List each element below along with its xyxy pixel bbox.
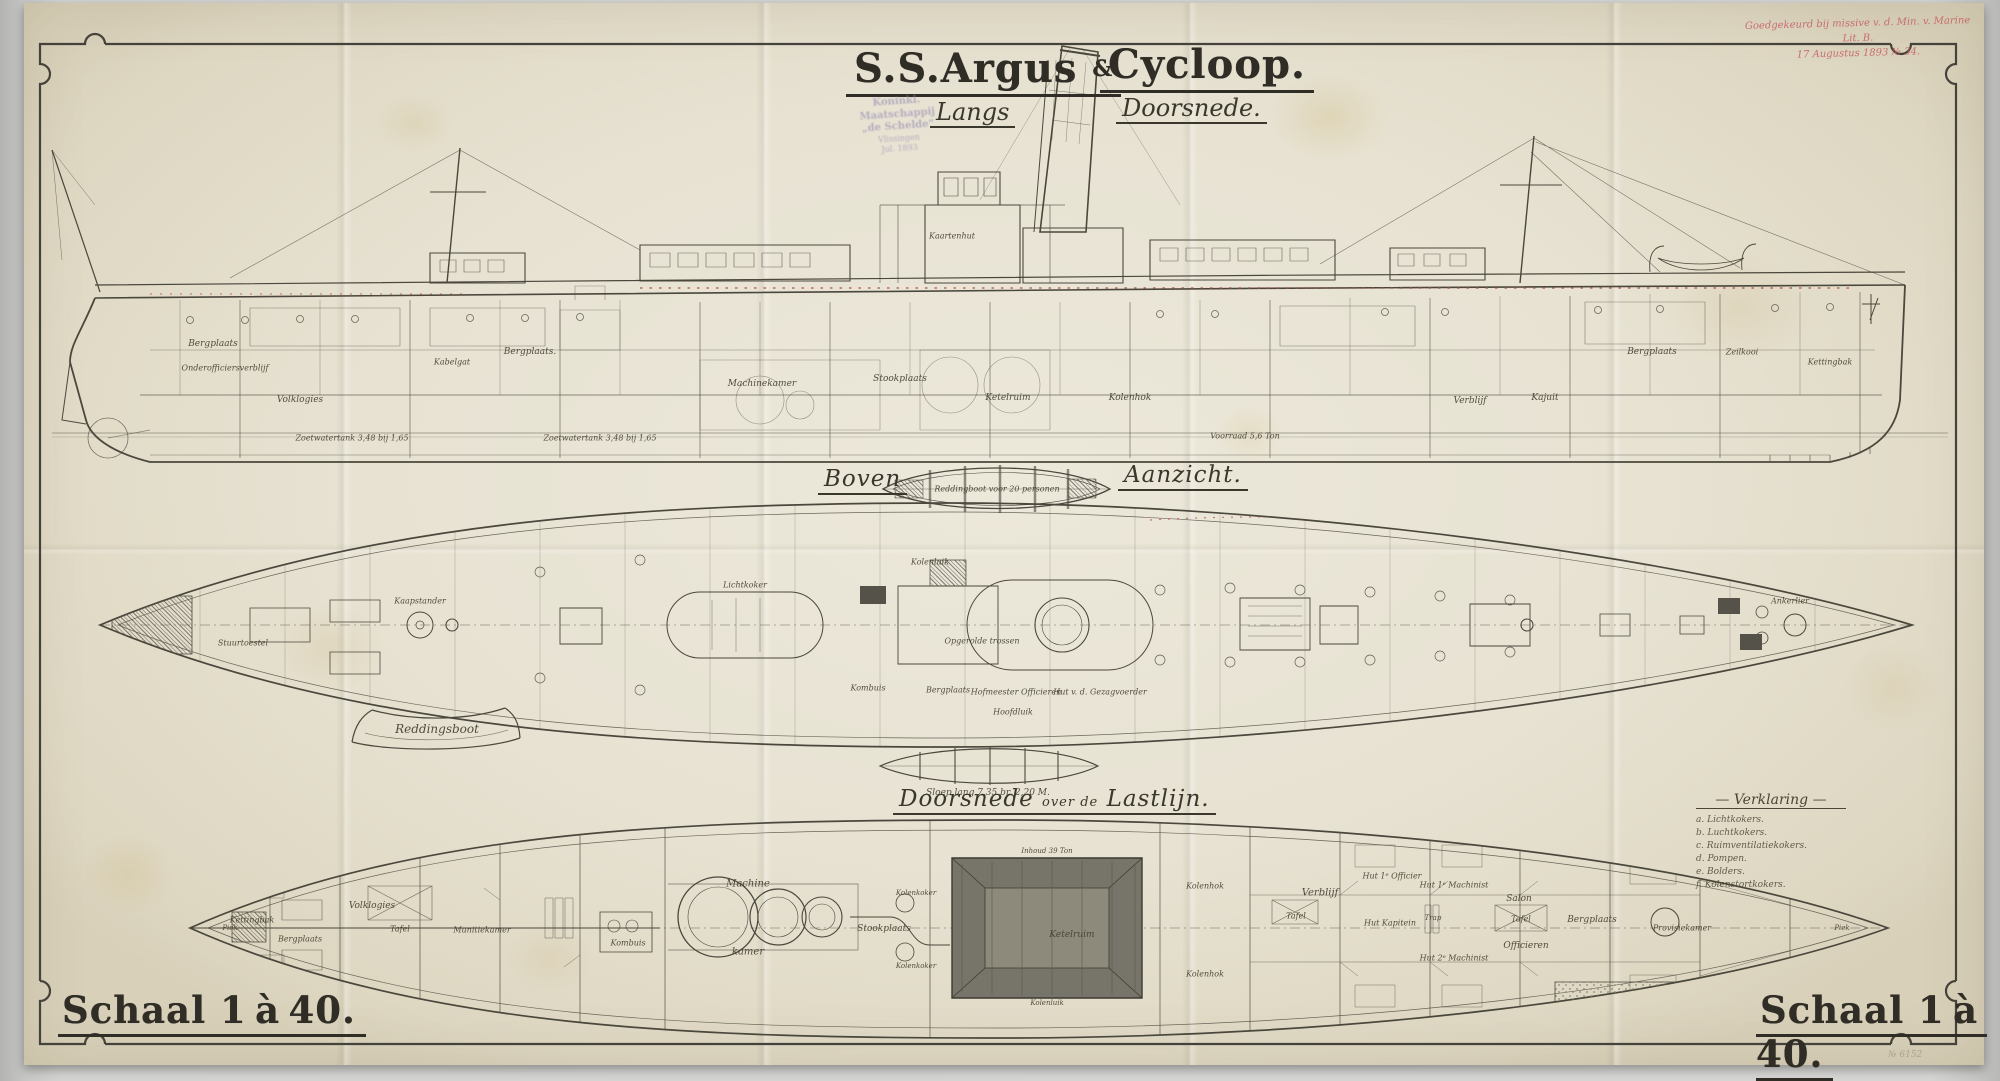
approval-annotation: Goedgekeurd bij missive v. d. Min. v. Ma… <box>1737 13 1978 64</box>
drawing-label: Kettingbak <box>1808 358 1853 367</box>
legend-item: c. Ruimventilatiekokers. <box>1696 840 1846 853</box>
drawing-label: Kolenkoker <box>896 962 936 970</box>
drawing-label: Volklogies <box>277 395 323 405</box>
scanned-ship-plan-sheet: { "title": { "left": "S.S.Argus", "amp":… <box>0 0 2000 1081</box>
drawing-label: Zoetwatertank 3,48 bij 1,65 <box>295 434 408 443</box>
drawing-label: Hoofdluik <box>993 708 1033 717</box>
drawing-label: Ankerlier <box>1771 597 1809 606</box>
drawing-label: Kaapstander <box>394 597 446 606</box>
legend-item: e. Bolders. <box>1696 866 1846 879</box>
drawing-label: Kolenkoker <box>896 889 936 897</box>
drawing-label: Hut 1ᵉ Officier <box>1363 872 1422 881</box>
drawing-label: Stookplaats <box>873 374 927 384</box>
drawing-label: Machine <box>726 879 770 890</box>
drawing-label: Hut Kapitein <box>1364 919 1416 928</box>
scale-note-right: Schaal 1 à 40. <box>1756 988 2000 1076</box>
drawing-label: Tafel <box>1511 915 1531 924</box>
ship-plan-drawing <box>0 0 2000 1081</box>
drawing-label: Verblijf <box>1454 396 1487 406</box>
drawing-label: Inhoud 39 Ton <box>1021 847 1072 855</box>
drawing-label: Onderofficiersverblijf <box>182 364 269 373</box>
drawing-label: Kombuis <box>610 939 645 948</box>
drawing-label: kamer <box>732 947 764 958</box>
drawing-label: Stookplaats <box>857 924 911 934</box>
drawing-label: Kolenluik <box>911 558 949 567</box>
legend-item: d. Pompen. <box>1696 853 1846 866</box>
legend-item: f. Kolenstortkokers. <box>1696 879 1846 892</box>
plan-header-left: Boven <box>818 466 907 492</box>
drawing-label: Bergplaats <box>1567 915 1617 925</box>
legend-title: — Verklaring — <box>1696 792 1846 809</box>
drawing-label: Provisiekamer <box>1653 924 1711 933</box>
drawing-label: Stuurtoestel <box>218 639 268 648</box>
drawing-label: Bergplaats <box>926 686 970 695</box>
legend: — Verklaring — a. Lichtkokers.b. Luchtko… <box>1696 792 1846 892</box>
shipyard-stamp: Koninkl. Maatschappij „de Schelde” Vliss… <box>850 93 946 157</box>
drawing-label: Kolenhok <box>1186 970 1224 979</box>
drawing-label: Hut 2ᵉ Machinist <box>1420 954 1489 963</box>
drawing-label: Hofmeester Officieren <box>971 688 1062 697</box>
drawing-label: Kolenhok <box>1186 882 1224 891</box>
drawing-label: Bergplaats <box>1627 347 1677 357</box>
drawing-label: Opgerolde trossen <box>944 637 1019 646</box>
drawing-label: Hut v. d. Gezagvoerder <box>1053 688 1147 697</box>
drawing-label: Reddingboot voor 20 personen <box>934 485 1059 494</box>
drawing-label: Tafel <box>390 925 410 934</box>
legend-item: b. Luchtkokers. <box>1696 827 1846 840</box>
legend-item: a. Lichtkokers. <box>1696 814 1846 827</box>
drawing-label: Zeilkooi <box>1726 348 1758 357</box>
drawing-label: Bergplaats <box>188 339 238 349</box>
drawing-label: Reddingsboot <box>395 722 479 736</box>
drawing-label: Hut 1ᵉ Machinist <box>1420 881 1489 890</box>
drawing-label: Zoetwatertank 3,48 bij 1,65 <box>543 434 656 443</box>
legend-items: a. Lichtkokers.b. Luchtkokers.c. Ruimven… <box>1696 814 1846 892</box>
drawing-label: Volklogies <box>349 901 395 911</box>
drawing-label: Munitiekamer <box>453 926 510 935</box>
subtitle-doorsnede: Doorsnede. <box>1116 94 1267 122</box>
drawing-label: Kajuit <box>1531 393 1558 403</box>
drawing-label: Voorraad 5,6 Ton <box>1210 432 1279 441</box>
drawing-label: Piek <box>1834 924 1849 932</box>
drawing-label: Officieren <box>1503 941 1548 951</box>
title-right: Cycloop. <box>1100 44 1314 86</box>
drawing-label: Kolenluik <box>1030 999 1063 1007</box>
drawing-label: Ketelruim <box>1049 930 1094 940</box>
pencil-note: № 6152 <box>1888 1050 1922 1060</box>
title-left: S.S.Argus & <box>846 48 1121 90</box>
drawing-label: Bergplaats <box>278 935 322 944</box>
drawing-label: Machinekamer <box>728 379 796 389</box>
drawing-label: Sloep lang 7,35 br. 2,20 M. <box>926 788 1050 798</box>
drawing-label: Lichtkoker <box>723 581 767 590</box>
drawing-label: Kombuis <box>850 684 885 693</box>
drawing-label: Piek <box>222 924 237 932</box>
drawing-label: Tafel <box>1286 912 1306 921</box>
drawing-label: Kaartenhut <box>929 232 975 241</box>
drawing-label: Trap <box>1425 914 1442 922</box>
scale-note-left: Schaal 1 à 40. <box>58 988 366 1032</box>
drawing-label: Kabelgat <box>434 358 470 367</box>
drawing-label: Verblijf <box>1302 888 1339 899</box>
drawing-label: Kolenhok <box>1109 393 1152 403</box>
drawing-label: Ketelruim <box>985 393 1030 403</box>
drawing-label: Bergplaats. <box>504 347 556 357</box>
plan-header-right: Aanzicht. <box>1118 462 1248 488</box>
drawing-label: Salon <box>1506 894 1532 904</box>
